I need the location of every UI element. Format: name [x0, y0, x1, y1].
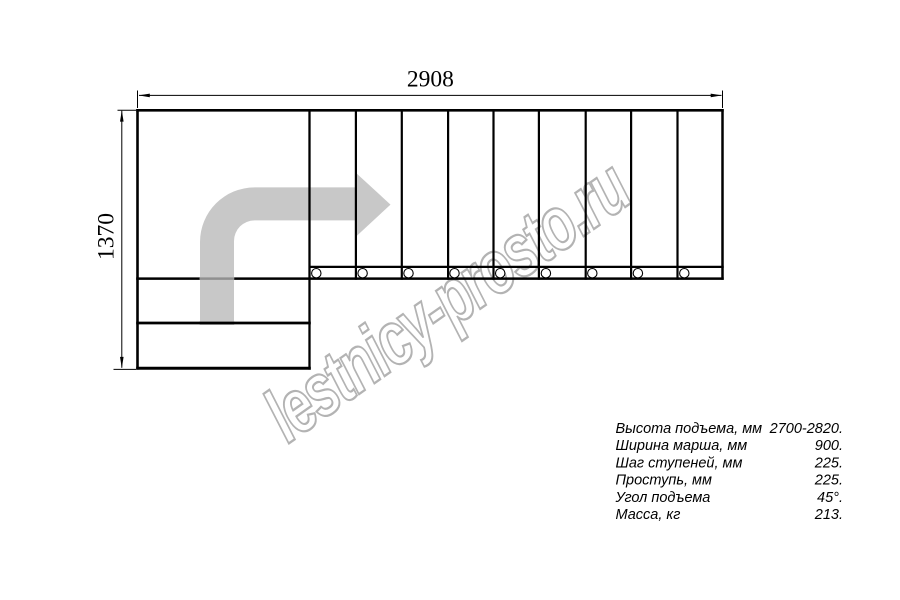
svg-text:213.: 213. [814, 507, 843, 523]
svg-text:Высота подъема, мм: Высота подъема, мм [616, 421, 763, 437]
svg-text:2700-2820.: 2700-2820. [769, 421, 843, 437]
svg-text:2908: 2908 [407, 67, 454, 93]
svg-text:45°.: 45°. [817, 490, 843, 506]
svg-text:900.: 900. [815, 438, 843, 454]
svg-text:Проступь, мм: Проступь, мм [616, 473, 712, 489]
svg-text:225.: 225. [814, 473, 843, 489]
svg-text:Ширина марша, мм: Ширина марша, мм [616, 438, 748, 454]
svg-text:Угол подъема: Угол подъема [615, 490, 711, 506]
svg-text:1370: 1370 [93, 213, 119, 260]
svg-text:225.: 225. [814, 455, 843, 471]
svg-text:Шаг ступеней, мм: Шаг ступеней, мм [616, 455, 743, 471]
svg-text:Масса, кг: Масса, кг [616, 507, 681, 523]
